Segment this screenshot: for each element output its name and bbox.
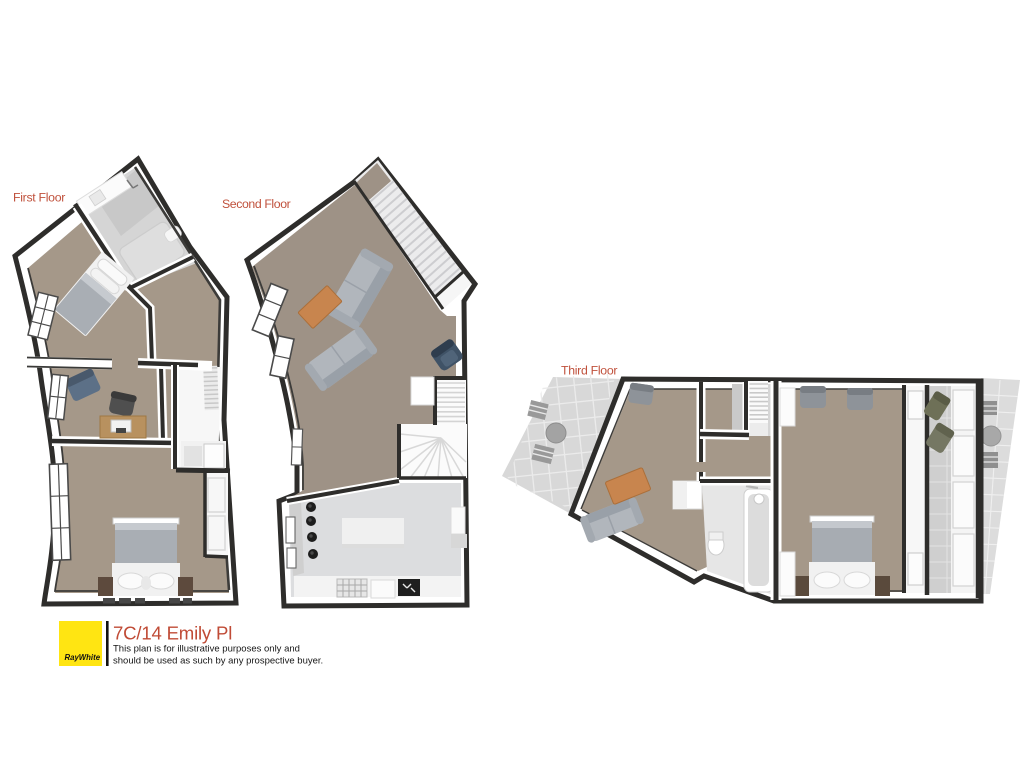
svg-text:7C/14 Emily Pl: 7C/14 Emily Pl (113, 623, 232, 644)
svg-text:This plan is for illustrative: This plan is for illustrative purposes o… (113, 644, 300, 655)
svg-text:Second Floor: Second Floor (222, 197, 291, 211)
svg-text:RayWhite: RayWhite (65, 653, 101, 662)
svg-text:should be used as such by any: should be used as such by any prospectiv… (113, 656, 323, 667)
svg-text:Third Floor: Third Floor (561, 364, 617, 378)
svg-text:First Floor: First Floor (13, 191, 65, 205)
